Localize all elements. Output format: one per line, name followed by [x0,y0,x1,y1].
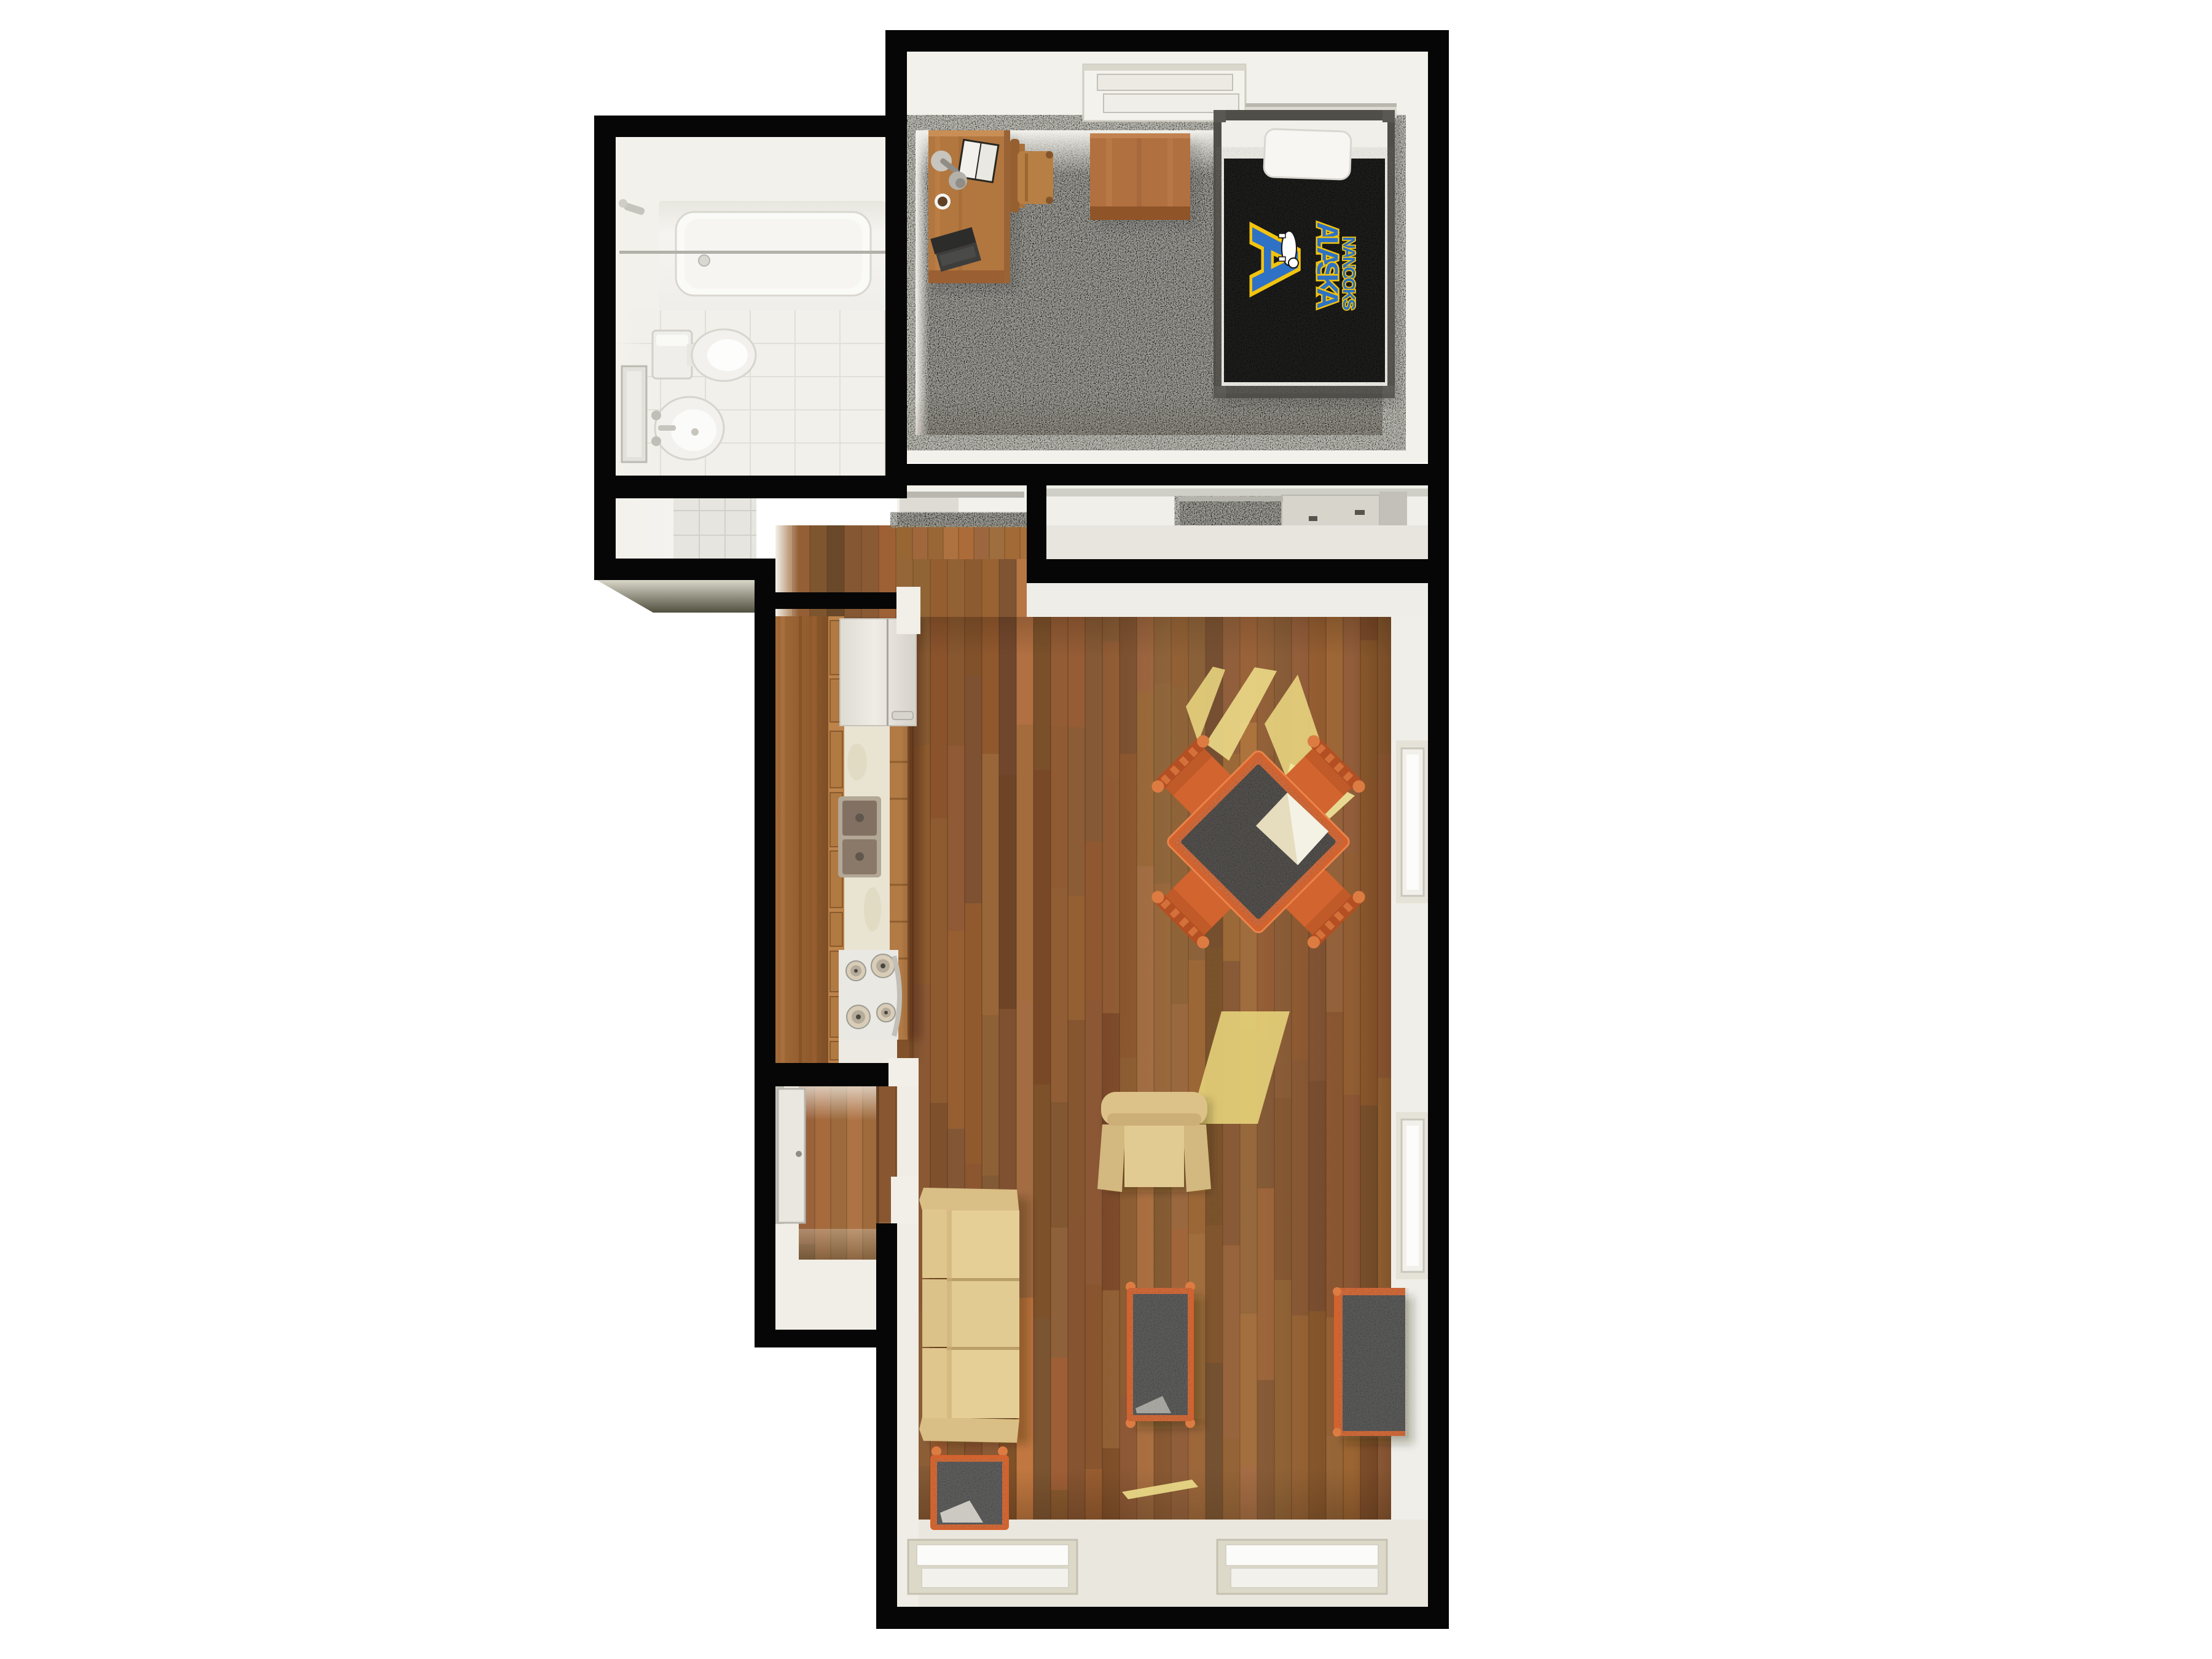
svg-text:NANOOKS: NANOOKS [1339,237,1359,310]
svg-text:ALASKA: ALASKA [1311,222,1343,309]
svg-text:A: A [1238,225,1312,294]
